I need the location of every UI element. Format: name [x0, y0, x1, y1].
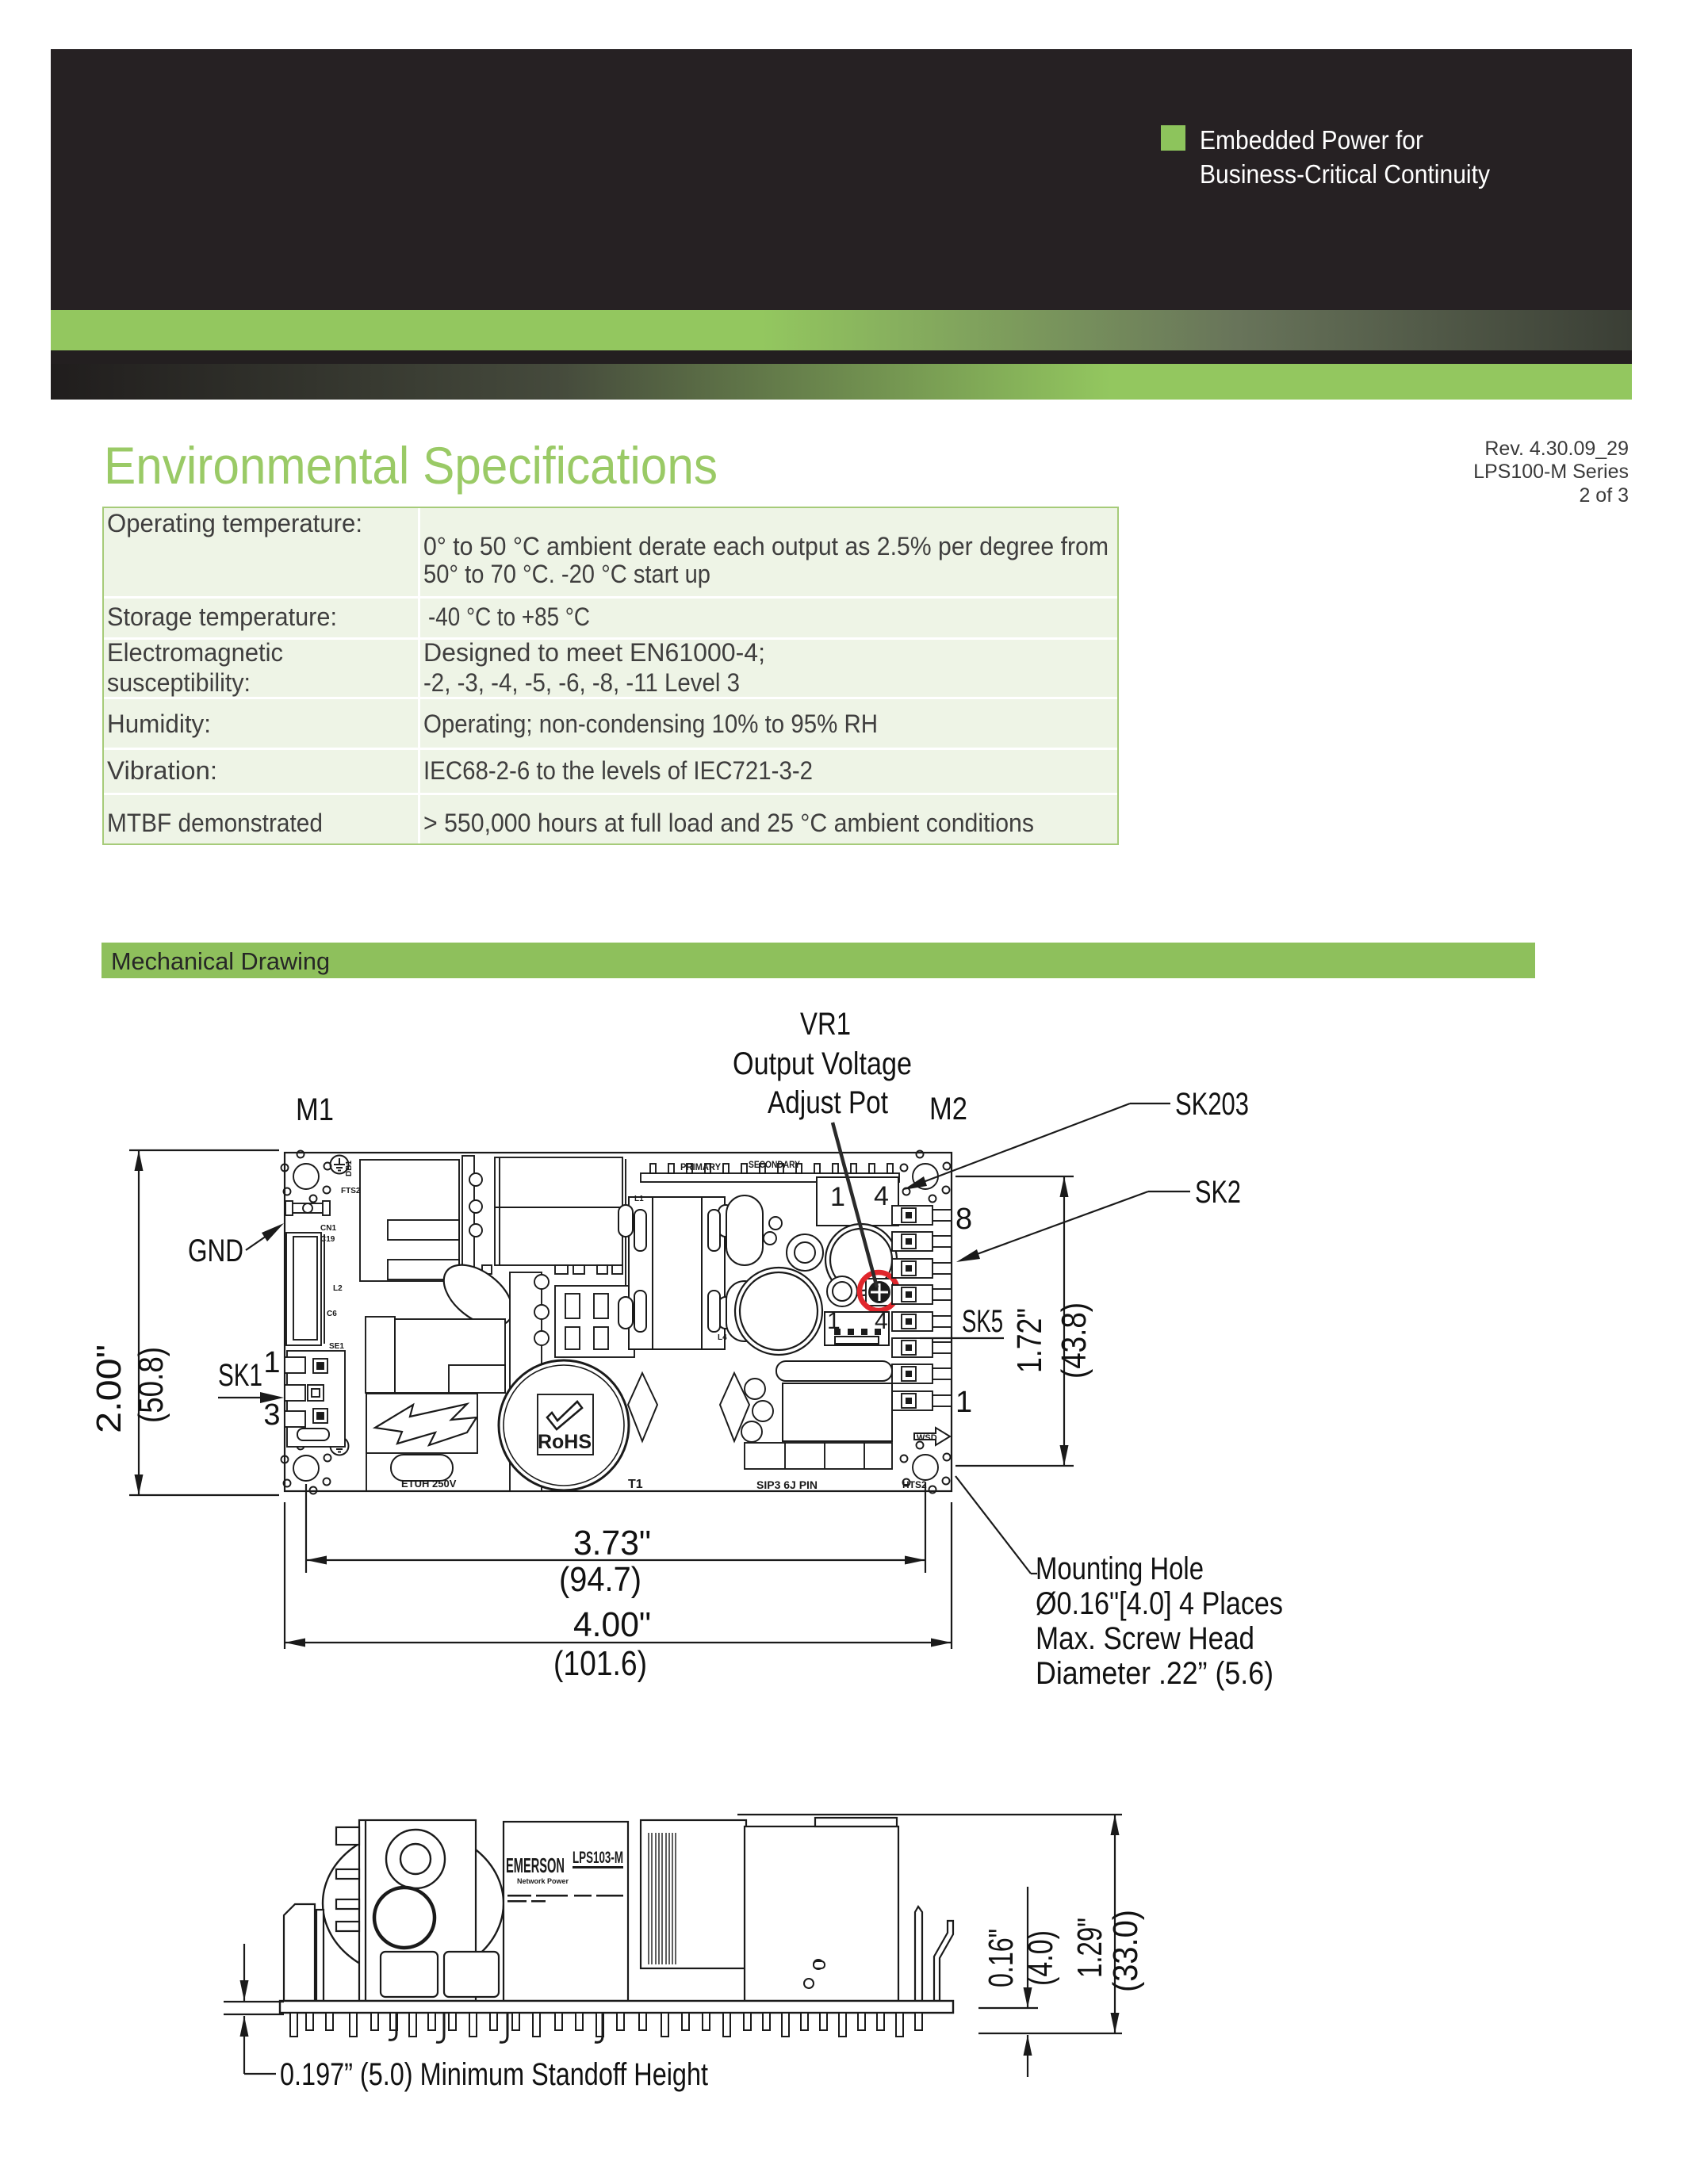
- svg-text:50° to 70 °C. -20 °C start up: 50° to 70 °C. -20 °C start up: [423, 560, 710, 588]
- svg-text:SECONDARY: SECONDARY: [749, 1159, 800, 1170]
- svg-text:FTS2: FTS2: [341, 1187, 361, 1195]
- svg-text:C19: C19: [320, 1235, 335, 1244]
- svg-text:0° to 50 °C ambient derate eac: 0° to 50 °C ambient derate each output a…: [423, 532, 1109, 560]
- svg-text:Adjust Pot: Adjust Pot: [768, 1085, 888, 1120]
- svg-text:(33.0): (33.0): [1106, 1910, 1145, 1992]
- svg-text:Embedded Power for: Embedded Power for: [1200, 125, 1423, 155]
- svg-text:2.00": 2.00": [90, 1344, 128, 1433]
- svg-text:3.73": 3.73": [573, 1524, 651, 1562]
- svg-text:MTBF demonstrated: MTBF demonstrated: [107, 809, 323, 837]
- svg-text:(94.7): (94.7): [559, 1560, 641, 1599]
- svg-text:SIP3 6J PIN: SIP3 6J PIN: [756, 1478, 818, 1491]
- svg-text:(101.6): (101.6): [553, 1644, 647, 1683]
- svg-text:HTS2: HTS2: [902, 1479, 927, 1490]
- svg-text:(43.8): (43.8): [1055, 1302, 1093, 1379]
- svg-text:Output Voltage: Output Voltage: [733, 1046, 912, 1081]
- svg-text:Mechanical Drawing: Mechanical Drawing: [111, 947, 330, 975]
- svg-text:M2: M2: [929, 1092, 967, 1126]
- svg-text:-2, -3, -4, -5, -6, -8, -11 Le: -2, -3, -4, -5, -6, -8, -11 Level 3: [423, 668, 740, 697]
- svg-text:RoHS: RoHS: [538, 1431, 592, 1453]
- svg-text:> 550,000 hours at full load a: > 550,000 hours at full load and 25 °C a…: [423, 809, 1034, 837]
- svg-text:Vibration:: Vibration:: [107, 756, 217, 785]
- svg-text:1.72": 1.72": [1010, 1308, 1049, 1373]
- svg-text:GND: GND: [188, 1234, 243, 1268]
- svg-text:L1: L1: [634, 1195, 644, 1203]
- svg-text:Environmental Specifications: Environmental Specifications: [104, 436, 718, 495]
- svg-text:Max. Screw Head: Max. Screw Head: [1036, 1621, 1254, 1656]
- svg-text:C6: C6: [327, 1310, 337, 1318]
- svg-text:WSD: WSD: [917, 1433, 937, 1443]
- svg-text:4: 4: [875, 1308, 888, 1334]
- svg-text:L2: L2: [333, 1284, 343, 1293]
- svg-text:M1: M1: [296, 1092, 334, 1127]
- svg-text:IEC68-2-6 to the levels of IEC: IEC68-2-6 to the levels of IEC721-3-2: [423, 756, 813, 785]
- svg-text:Rev. 4.30.09_29: Rev. 4.30.09_29: [1484, 438, 1629, 460]
- svg-text:Mounting Hole: Mounting Hole: [1036, 1551, 1204, 1586]
- svg-text:Business-Critical Continuity: Business-Critical Continuity: [1200, 159, 1490, 189]
- svg-text:1: 1: [827, 1308, 841, 1334]
- svg-text:(50.8): (50.8): [132, 1347, 170, 1423]
- svg-text:susceptibility:: susceptibility:: [107, 668, 251, 697]
- svg-text:EMERSON: EMERSON: [506, 1853, 565, 1877]
- svg-text:-40 °C to +85 °C: -40 °C to +85 °C: [428, 602, 590, 631]
- svg-text:LPS103-M: LPS103-M: [573, 1849, 623, 1867]
- svg-text:1: 1: [830, 1182, 845, 1212]
- svg-text:Ø0.16"[4.0] 4 Places: Ø0.16"[4.0] 4 Places: [1036, 1586, 1283, 1621]
- svg-text:Electromagnetic: Electromagnetic: [107, 638, 283, 667]
- svg-text:8: 8: [955, 1203, 972, 1236]
- svg-text:SE1: SE1: [329, 1342, 344, 1351]
- svg-text:3: 3: [263, 1398, 280, 1432]
- svg-text:1: 1: [955, 1386, 972, 1419]
- svg-text:SK2: SK2: [1195, 1175, 1241, 1210]
- svg-text:CN1: CN1: [320, 1224, 336, 1233]
- svg-text:Operating temperature:: Operating temperature:: [107, 509, 362, 537]
- svg-text:SK1: SK1: [218, 1358, 262, 1393]
- svg-text:SK5: SK5: [962, 1304, 1003, 1339]
- svg-text:Network Power: Network Power: [517, 1877, 569, 1885]
- svg-text:Designed to meet EN61000-4;: Designed to meet EN61000-4;: [423, 638, 765, 667]
- svg-text:4.00": 4.00": [573, 1605, 651, 1644]
- svg-text:1.29": 1.29": [1070, 1918, 1109, 1978]
- svg-text:L4: L4: [718, 1333, 727, 1342]
- svg-text:1: 1: [263, 1346, 280, 1379]
- svg-text:ETUH 250V: ETUH 250V: [401, 1478, 457, 1490]
- svg-text:2 of 3: 2 of 3: [1579, 484, 1629, 507]
- svg-text:0.16": 0.16": [982, 1929, 1021, 1987]
- svg-text:T1: T1: [628, 1478, 643, 1491]
- svg-text:Operating; non-condensing 10%: Operating; non-condensing 10% to 95% RH: [423, 710, 878, 738]
- svg-text:Storage temperature:: Storage temperature:: [107, 602, 337, 631]
- svg-text:LPS100-M Series: LPS100-M Series: [1473, 461, 1629, 483]
- svg-text:Diameter .22” (5.6): Diameter .22” (5.6): [1036, 1656, 1273, 1691]
- svg-text:(4.0): (4.0): [1021, 1930, 1060, 1986]
- svg-text:0.197” (5.0) Minimum Standoff: 0.197” (5.0) Minimum Standoff Height: [280, 2057, 708, 2092]
- svg-text:DB1: DB1: [345, 1161, 354, 1176]
- svg-text:SK203: SK203: [1175, 1087, 1249, 1122]
- svg-text:Humidity:: Humidity:: [107, 710, 211, 738]
- svg-text:4: 4: [874, 1181, 889, 1211]
- svg-text:PRIMARY: PRIMARY: [680, 1161, 721, 1172]
- svg-text:VR1: VR1: [800, 1007, 851, 1042]
